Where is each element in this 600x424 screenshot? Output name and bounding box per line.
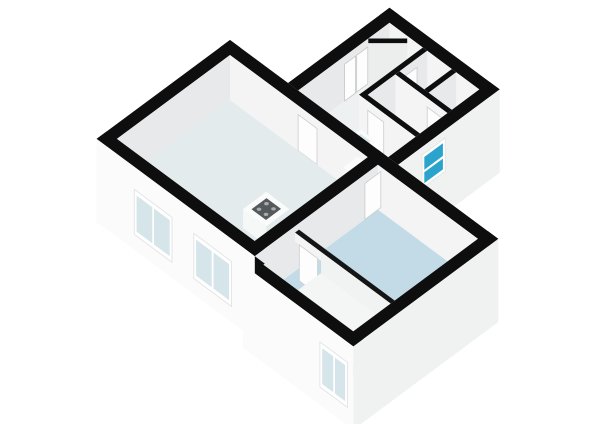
entry-door-leaf	[345, 56, 356, 101]
bedroom-window-glass	[335, 358, 345, 402]
diagonal-closet-wall-top	[368, 39, 407, 44]
cooktop-burner	[257, 208, 262, 211]
entry-door-leaf	[357, 47, 368, 92]
floor-plan-svg	[0, 0, 600, 424]
cooktop-burner	[271, 207, 276, 210]
cooktop-burner	[264, 213, 269, 216]
floor-plan-canvas	[0, 0, 600, 424]
cooktop-burner	[264, 202, 269, 205]
